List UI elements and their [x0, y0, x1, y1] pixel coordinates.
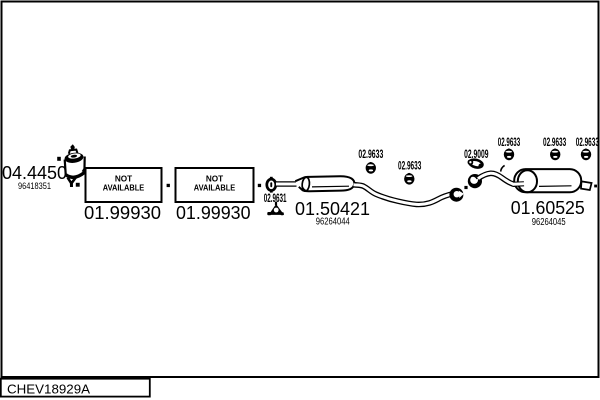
- svg-text:AVAILABLE: AVAILABLE: [194, 184, 236, 193]
- svg-text:CHEV18929A: CHEV18929A: [7, 382, 90, 397]
- svg-text:01.99930: 01.99930: [84, 203, 161, 223]
- svg-text:NOT: NOT: [206, 175, 223, 184]
- svg-text:02.9633: 02.9633: [543, 135, 566, 149]
- svg-text:04.4450: 04.4450: [2, 163, 67, 183]
- svg-text:02.9633: 02.9633: [358, 147, 383, 161]
- svg-text:01.60525: 01.60525: [511, 198, 585, 218]
- svg-text:01.99930: 01.99930: [176, 203, 251, 223]
- svg-text:96264044: 96264044: [316, 216, 350, 227]
- svg-text:96264045: 96264045: [532, 217, 566, 228]
- svg-text:NOT: NOT: [115, 175, 132, 184]
- svg-text:02.9633: 02.9633: [576, 135, 599, 149]
- svg-text:96418351: 96418351: [18, 181, 51, 192]
- svg-text:02.9633: 02.9633: [498, 135, 521, 149]
- svg-text:02.9633: 02.9633: [398, 158, 421, 172]
- svg-text:AVAILABLE: AVAILABLE: [103, 184, 145, 193]
